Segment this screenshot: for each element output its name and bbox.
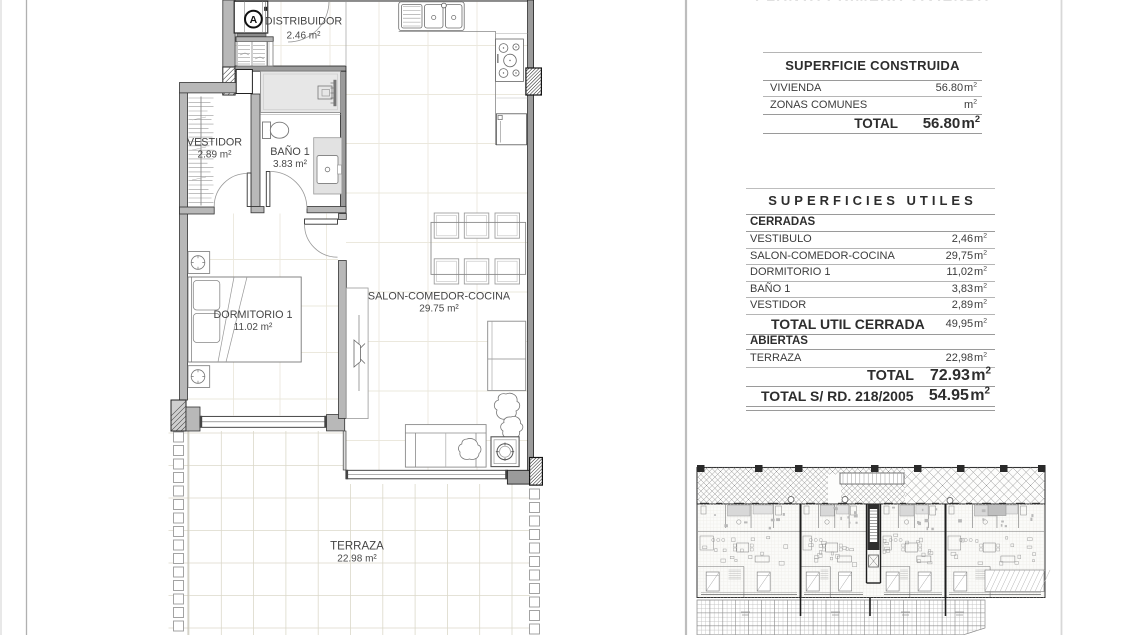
- svg-text:3.83 m²: 3.83 m²: [273, 159, 308, 170]
- svg-text:22.98 m²: 22.98 m²: [337, 554, 377, 565]
- svg-text:29.75 m²: 29.75 m²: [419, 304, 459, 315]
- svg-text:BAÑO 1: BAÑO 1: [270, 145, 310, 158]
- svg-text:SALON-COMEDOR-COCINA: SALON-COMEDOR-COCINA: [368, 291, 511, 303]
- svg-text:DORMITORIO 1: DORMITORIO 1: [214, 309, 293, 321]
- svg-text:2.46 m²: 2.46 m²: [287, 31, 322, 42]
- svg-text:2.89 m²: 2.89 m²: [198, 150, 233, 161]
- svg-text:DISTRIBUIDOR: DISTRIBUIDOR: [265, 16, 343, 28]
- svg-text:11.02 m²: 11.02 m²: [234, 322, 273, 333]
- svg-text:TERRAZA: TERRAZA: [330, 541, 384, 553]
- svg-text:A: A: [250, 14, 258, 26]
- svg-text:VESTIDOR: VESTIDOR: [187, 137, 242, 149]
